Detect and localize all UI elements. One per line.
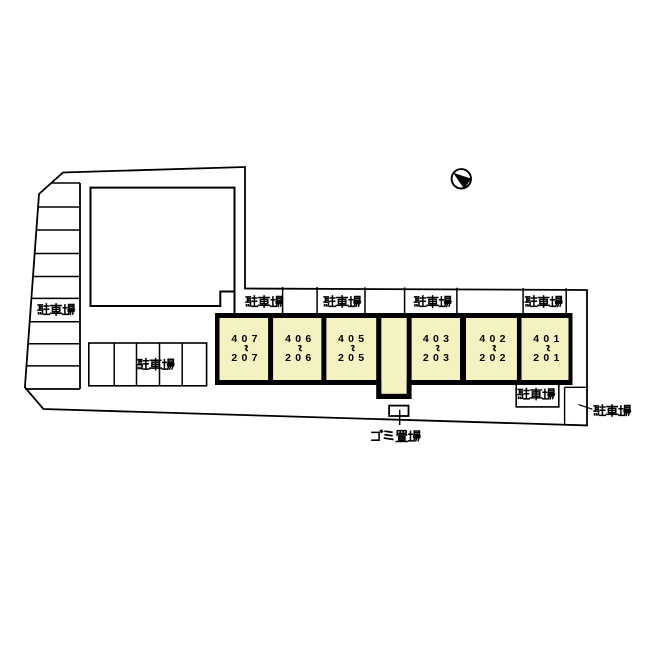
svg-text:402: 402 <box>479 333 509 345</box>
svg-text:205: 205 <box>338 352 368 364</box>
svg-text:401: 401 <box>533 333 563 345</box>
svg-text:403: 403 <box>423 333 453 345</box>
svg-text:407: 407 <box>231 333 261 345</box>
svg-text:405: 405 <box>338 333 368 345</box>
svg-text:406: 406 <box>285 333 315 345</box>
svg-text:202: 202 <box>479 352 509 364</box>
svg-text:207: 207 <box>231 352 261 364</box>
svg-text:203: 203 <box>423 352 453 364</box>
svg-text:206: 206 <box>285 352 315 364</box>
svg-text:201: 201 <box>533 352 563 364</box>
